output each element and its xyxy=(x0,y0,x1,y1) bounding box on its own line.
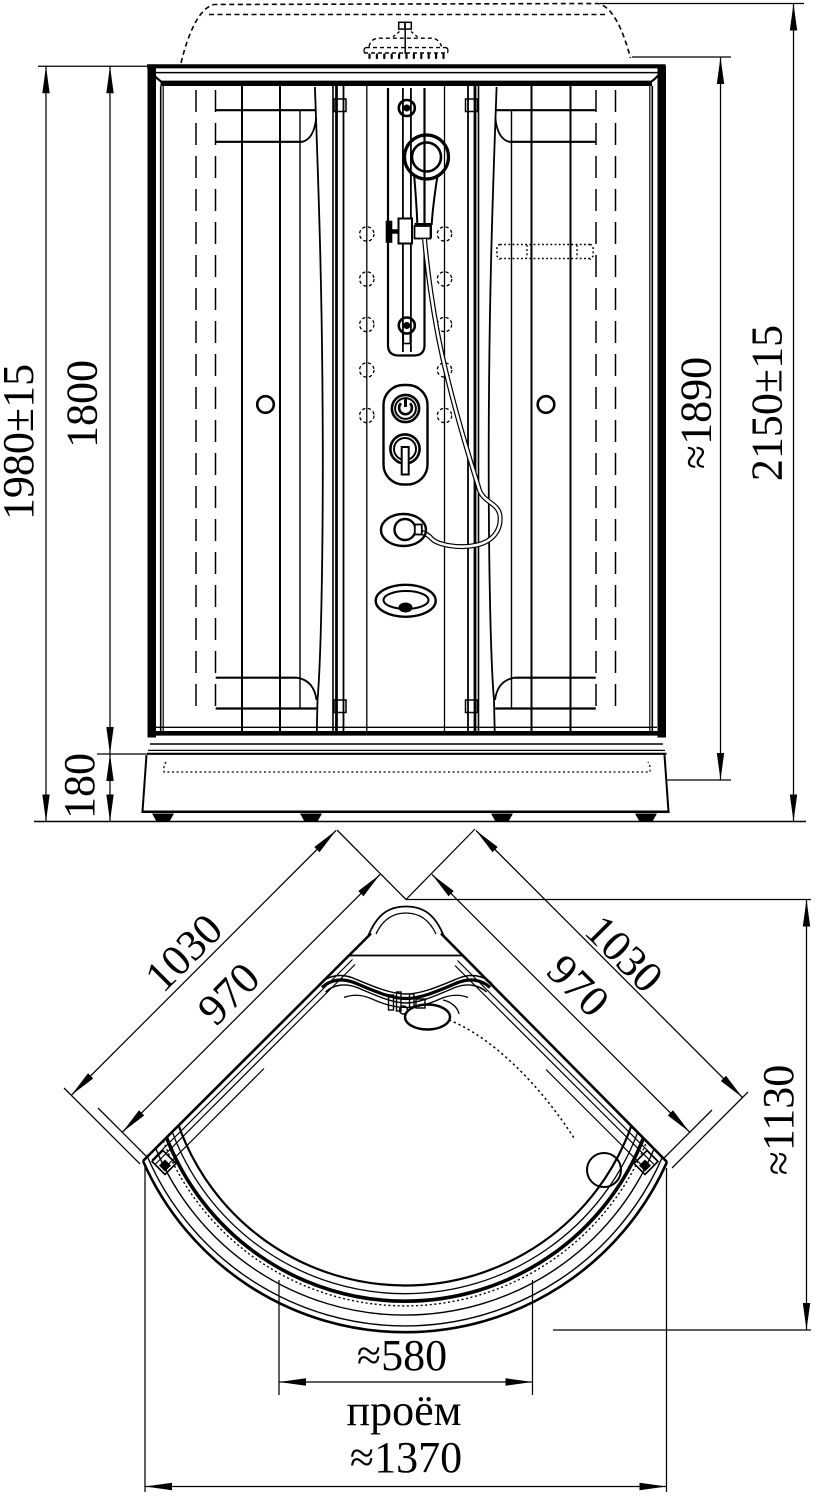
svg-text:проём: проём xyxy=(347,1386,462,1435)
svg-text:1800: 1800 xyxy=(58,360,107,448)
svg-text:≈1370: ≈1370 xyxy=(350,1433,462,1482)
svg-text:1980±15: 1980±15 xyxy=(0,364,43,520)
svg-text:≈1130: ≈1130 xyxy=(754,1065,803,1176)
svg-text:≈580: ≈580 xyxy=(357,1331,447,1380)
svg-text:2150±15: 2150±15 xyxy=(743,325,792,481)
svg-text:≈1890: ≈1890 xyxy=(672,357,721,469)
svg-text:180: 180 xyxy=(55,753,104,819)
